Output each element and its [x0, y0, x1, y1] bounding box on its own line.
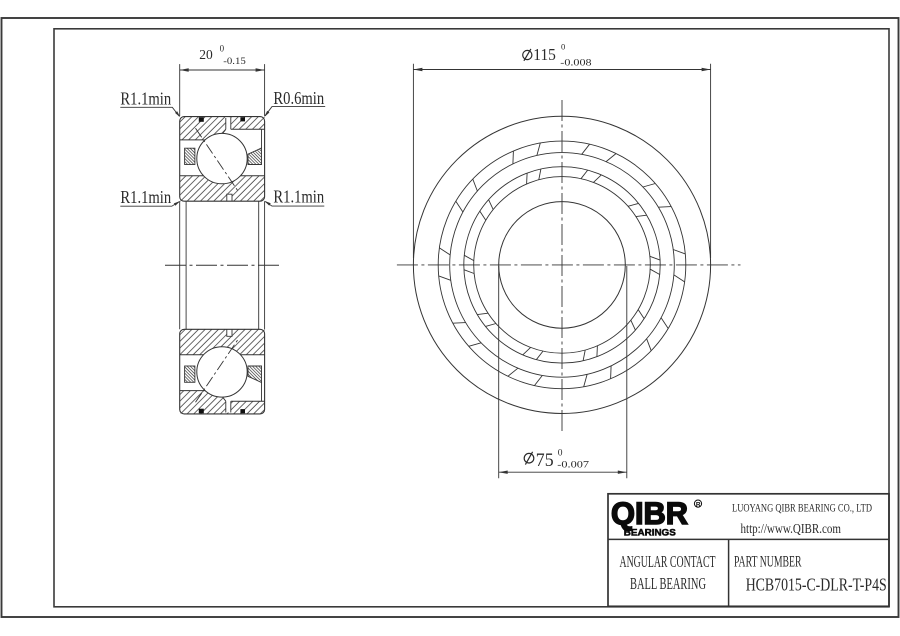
svg-text:ANGULAR CONTACT: ANGULAR CONTACT: [620, 552, 716, 571]
svg-text:HCB7015-C-DLR-T-P4S: HCB7015-C-DLR-T-P4S: [746, 574, 887, 594]
svg-text:R: R: [696, 501, 701, 508]
svg-text:-0.15: -0.15: [223, 56, 246, 66]
svg-text:-0.007: -0.007: [557, 460, 589, 470]
svg-text:115: 115: [533, 45, 556, 64]
svg-text:0: 0: [561, 42, 565, 52]
svg-text:R0.6min: R0.6min: [273, 88, 324, 108]
svg-text:PART NUMBER: PART NUMBER: [734, 554, 802, 571]
svg-text:LUOYANG QIBR BEARING CO., LTD: LUOYANG QIBR BEARING CO., LTD: [732, 501, 872, 515]
svg-text:R1.1min: R1.1min: [120, 88, 171, 108]
svg-text:R1.1min: R1.1min: [273, 187, 324, 207]
svg-text:0: 0: [220, 44, 225, 54]
svg-text:R1.1min: R1.1min: [120, 187, 171, 207]
svg-text:75: 75: [536, 450, 554, 471]
svg-text:BEARINGS: BEARINGS: [624, 528, 676, 539]
svg-text:20: 20: [199, 47, 213, 62]
svg-text:0: 0: [558, 449, 563, 459]
svg-text:QIBR: QIBR: [611, 495, 688, 531]
svg-text:BALL BEARING: BALL BEARING: [630, 574, 706, 593]
svg-text:-0.008: -0.008: [560, 59, 592, 69]
svg-text:http://www.QIBR.com: http://www.QIBR.com: [741, 522, 842, 537]
